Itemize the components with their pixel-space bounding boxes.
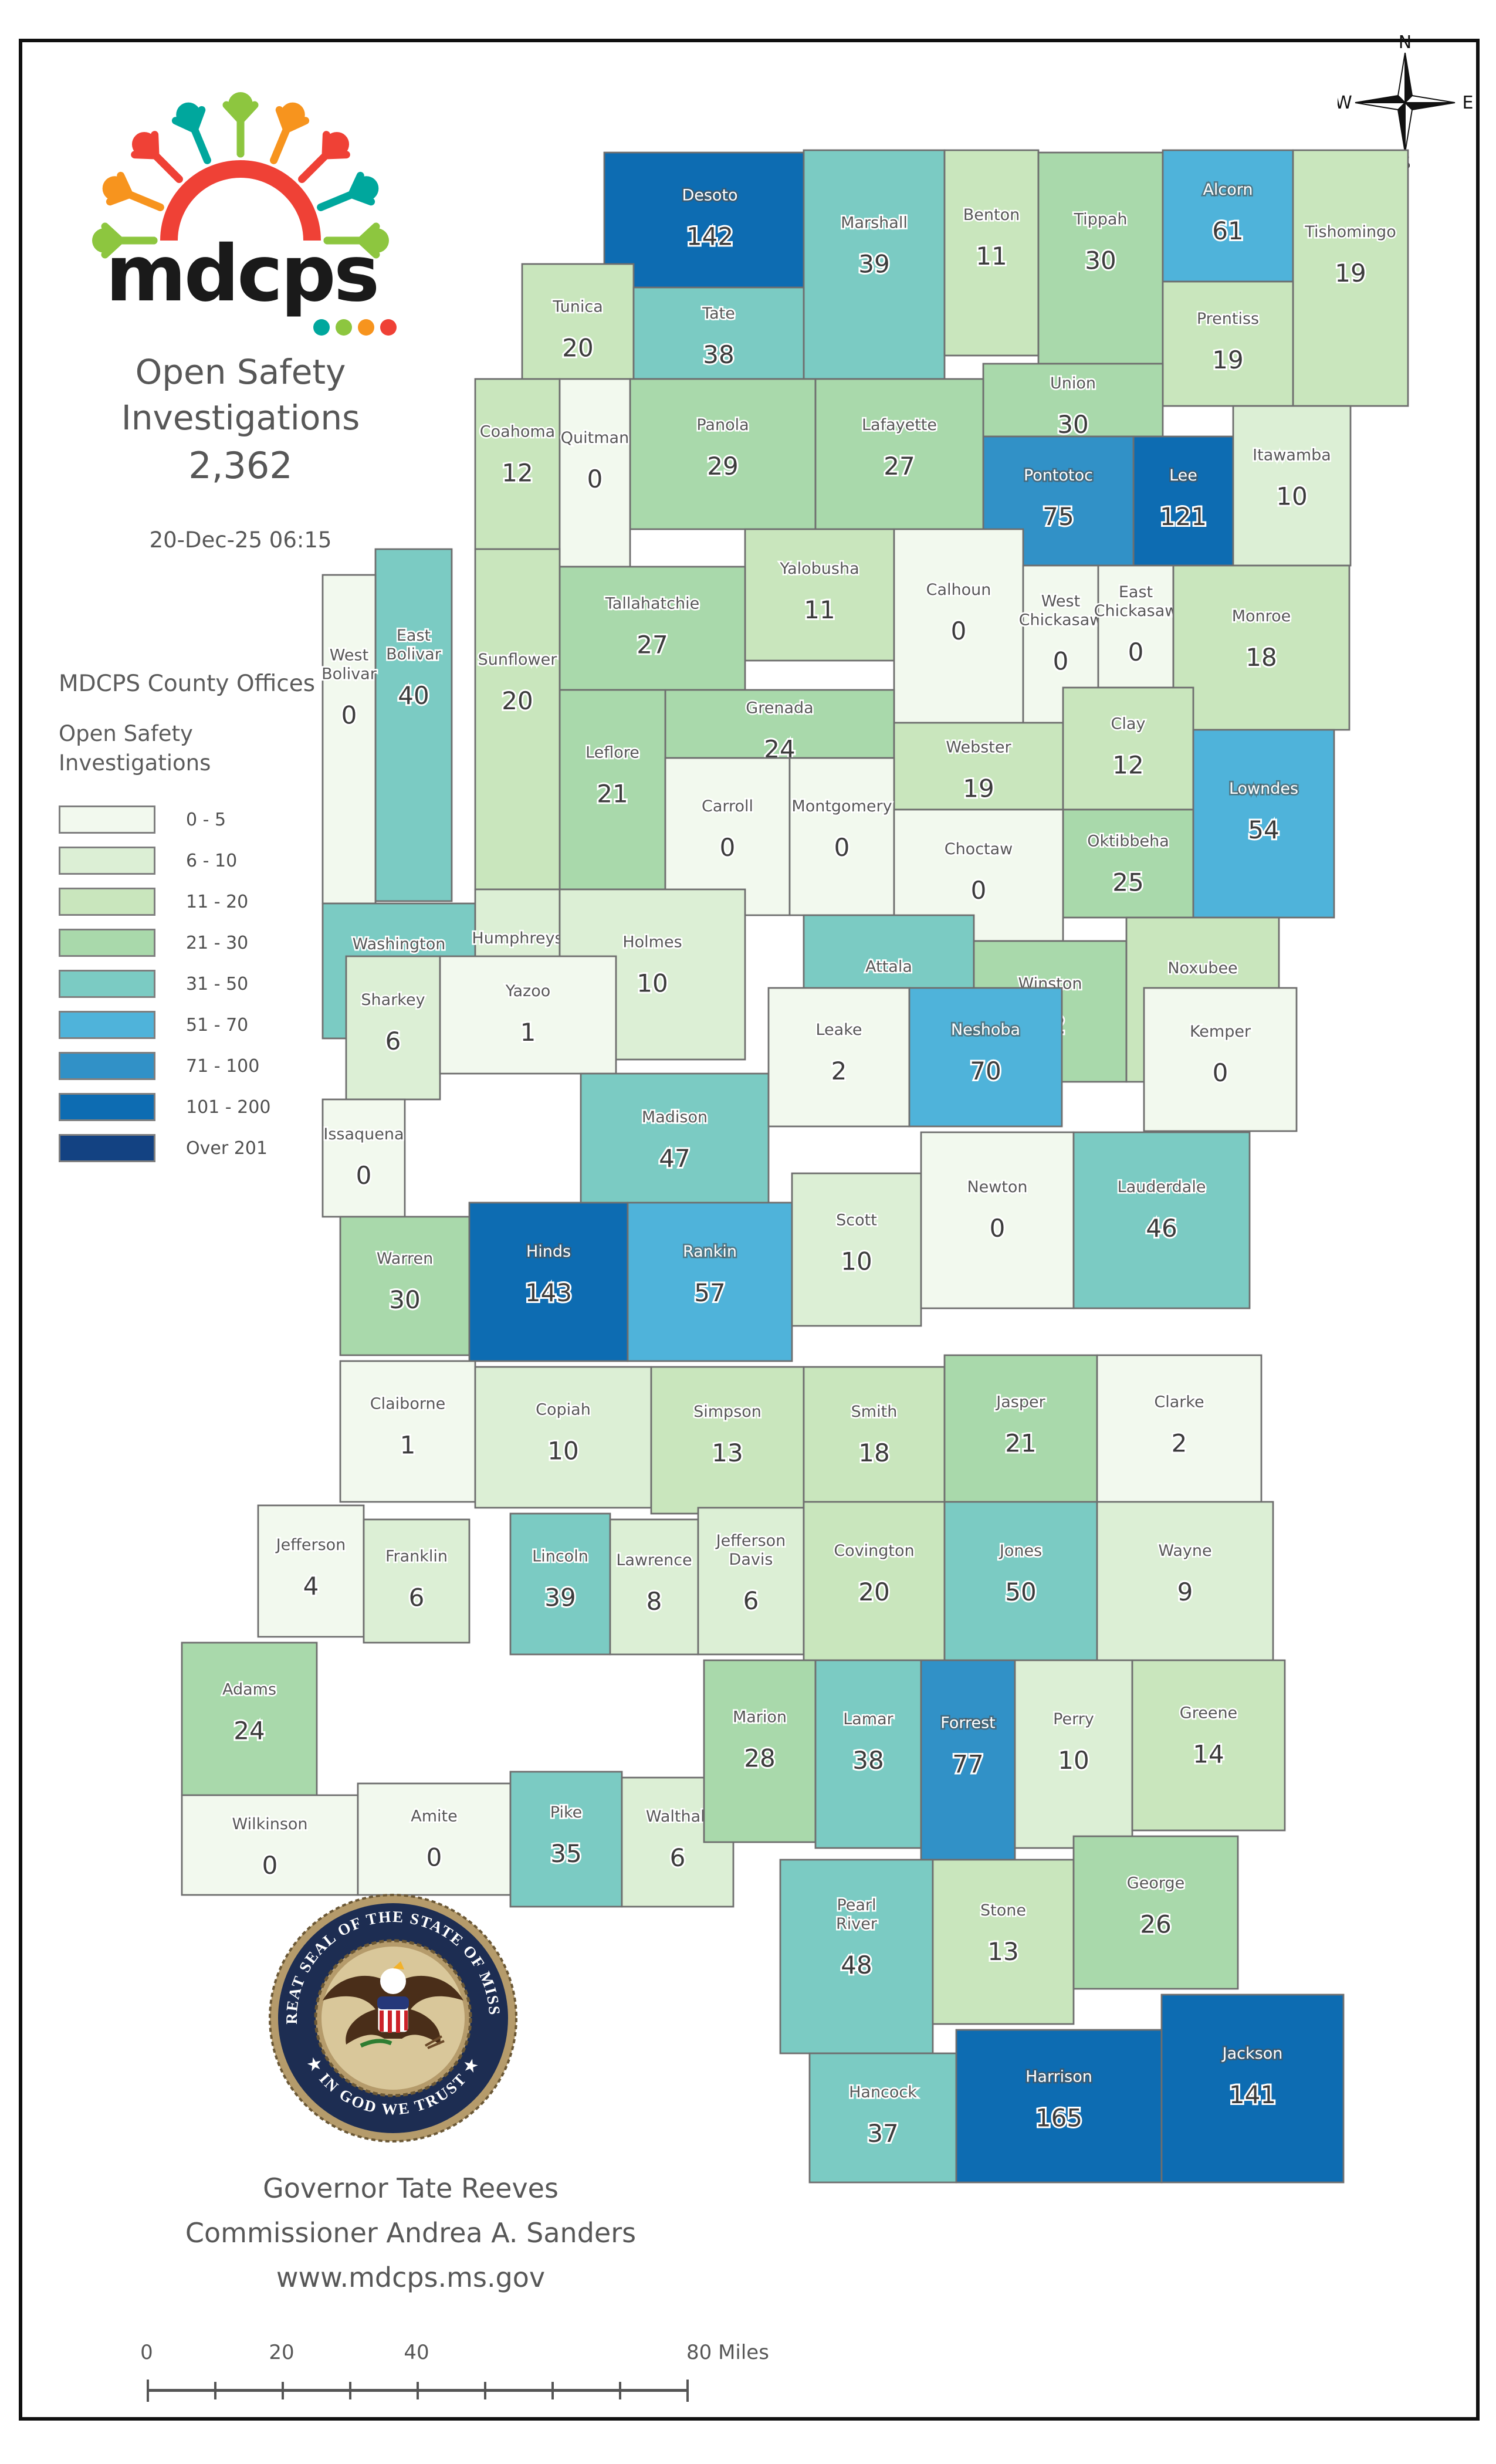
county-value: 143 xyxy=(525,1278,572,1307)
county-name-label: Marion xyxy=(733,1708,787,1726)
county-value: 27 xyxy=(884,452,915,480)
county-lamar: Lamar38 xyxy=(815,1660,921,1848)
county-value: 28 xyxy=(744,1744,775,1772)
county-name-label: Stone xyxy=(980,1901,1026,1920)
county-name-label: Lauderdale xyxy=(1118,1178,1206,1196)
county-clarke: Clarke2 xyxy=(1097,1355,1261,1508)
county-name-label: Forrest xyxy=(940,1714,996,1732)
county-value: 61 xyxy=(1212,216,1243,245)
county-name-label: East xyxy=(397,627,431,645)
county-value: 165 xyxy=(1035,2103,1082,2132)
county-sunflower: Sunflower20 xyxy=(475,549,560,889)
county-shape xyxy=(810,2053,956,2182)
county-value: 9 xyxy=(1177,1578,1193,1606)
county-name-label: Hancock xyxy=(849,2083,917,2101)
county-shape xyxy=(1163,150,1293,282)
county-shape xyxy=(698,1508,804,1654)
county-name-label: Chickasaw xyxy=(1019,611,1103,629)
county-value: 19 xyxy=(963,774,994,803)
county-value: 39 xyxy=(544,1583,576,1612)
county-value: 35 xyxy=(550,1839,581,1868)
county-value: 54 xyxy=(1248,815,1279,844)
county-name-label: Quitman xyxy=(561,429,629,447)
county-name-label: Warren xyxy=(377,1250,433,1268)
county-value: 0 xyxy=(720,833,736,862)
county-value: 0 xyxy=(341,701,357,730)
county-shape xyxy=(1063,688,1193,810)
county-value: 0 xyxy=(971,876,987,905)
county-smith: Smith18 xyxy=(804,1367,945,1514)
county-covington: Covington20 xyxy=(804,1502,945,1660)
county-leflore: Leflore21 xyxy=(560,690,665,889)
county-name-label: Yazoo xyxy=(505,982,551,1000)
scale-tick xyxy=(619,2382,621,2399)
county-shape xyxy=(745,529,894,661)
county-value: 10 xyxy=(637,969,668,998)
scale-mile-label: 0 xyxy=(140,2341,153,2364)
county-value: 6 xyxy=(385,1027,401,1055)
county-webster: Webster19 xyxy=(894,723,1063,810)
county-name-label: Jackson xyxy=(1221,2045,1283,2063)
county-value: 0 xyxy=(356,1161,372,1190)
county-value: 20 xyxy=(562,334,593,363)
scale-tick xyxy=(349,2382,351,2399)
county-choropleth: Desoto142Marshall39Benton11Tippah30Alcor… xyxy=(147,141,1426,2194)
county-chickasaw-east: EastChickasaw0 xyxy=(1094,566,1178,688)
county-value: 10 xyxy=(1058,1746,1089,1775)
county-alcorn: Alcorn61 xyxy=(1163,150,1293,282)
county-name-label: Wilkinson xyxy=(232,1815,307,1833)
county-name-label: West xyxy=(1041,593,1080,611)
county-desoto: Desoto142 xyxy=(604,153,815,293)
county-value: 0 xyxy=(262,1851,278,1880)
county-name-label: Benton xyxy=(963,206,1020,224)
county-name-label: Perry xyxy=(1053,1710,1094,1728)
county-value: 0 xyxy=(1053,647,1069,676)
county-value: 27 xyxy=(637,630,668,659)
county-value: 30 xyxy=(1085,246,1116,275)
county-tate: Tate38 xyxy=(634,287,804,379)
county-sharkey: Sharkey6 xyxy=(346,956,440,1099)
county-leake: Leake2 xyxy=(769,988,909,1126)
scale-tick xyxy=(686,2380,689,2402)
county-marion: Marion28 xyxy=(704,1660,815,1842)
county-name-label: Clarke xyxy=(1154,1393,1204,1411)
county-value: 10 xyxy=(841,1247,872,1275)
county-name-label: Covington xyxy=(834,1542,914,1560)
county-itawamba: Itawamba10 xyxy=(1233,406,1351,566)
compass-n-label: N xyxy=(1399,35,1412,53)
county-value: 6 xyxy=(743,1586,759,1615)
county-rankin: Rankin57 xyxy=(628,1203,792,1361)
legend-swatch xyxy=(59,970,155,998)
county-value: 50 xyxy=(1005,1578,1036,1606)
county-george: George26 xyxy=(1074,1836,1238,1989)
scale-mile-label: 80 Miles xyxy=(686,2341,769,2364)
county-claiborne: Claiborne1 xyxy=(340,1361,475,1502)
county-name-label: Issaquena xyxy=(323,1125,404,1143)
county-newton: Newton0 xyxy=(921,1132,1074,1308)
county-value: 0 xyxy=(990,1214,1006,1243)
county-lawrence: Lawrence8 xyxy=(610,1519,698,1654)
county-pike: Pike35 xyxy=(510,1772,622,1907)
county-shape xyxy=(440,956,616,1074)
county-copiah: Copiah10 xyxy=(475,1367,651,1508)
county-value: 121 xyxy=(1160,502,1207,531)
county-warren: Warren30 xyxy=(340,1217,469,1355)
county-name-label: Amite xyxy=(411,1808,457,1826)
legend-swatch xyxy=(59,847,155,875)
county-value: 18 xyxy=(1245,643,1277,672)
county-value: 46 xyxy=(1146,1214,1177,1243)
county-name-label: Carroll xyxy=(702,797,753,815)
scale-tick xyxy=(147,2380,149,2402)
legend-swatch xyxy=(59,1011,155,1039)
county-value: 0 xyxy=(1128,638,1144,666)
county-union: Union30 xyxy=(983,364,1163,439)
county-tallahatchie: Tallahatchie27 xyxy=(560,567,745,690)
county-harrison: Harrison165 xyxy=(956,2030,1162,2182)
county-quitman: Quitman0 xyxy=(560,379,630,567)
county-hinds: Hinds143 xyxy=(469,1203,628,1361)
county-jefferson: Jefferson4 xyxy=(258,1505,364,1637)
county-name-label: Tunica xyxy=(552,298,603,316)
county-value: 1 xyxy=(400,1431,416,1460)
county-name-label: West xyxy=(330,647,368,665)
compass-w-label: W xyxy=(1338,93,1352,113)
commissioner-credit: Commissioner Andrea A. Sanders xyxy=(100,2211,722,2255)
legend-swatch xyxy=(59,805,155,834)
county-name-label: Bolivar xyxy=(386,645,442,664)
county-name-label: Desoto xyxy=(682,187,737,205)
county-amite: Amite0 xyxy=(358,1783,510,1895)
county-value: 29 xyxy=(707,452,738,480)
county-name-label: Rankin xyxy=(683,1243,737,1261)
county-value: 10 xyxy=(1276,482,1307,510)
county-name-label: Lee xyxy=(1169,466,1197,485)
footer-credits: Governor Tate Reeves Commissioner Andrea… xyxy=(100,2166,722,2300)
county-madison: Madison47 xyxy=(581,1074,769,1217)
county-jones: Jones50 xyxy=(945,1502,1097,1660)
county-name-label: Kemper xyxy=(1190,1023,1251,1041)
county-value: 37 xyxy=(867,2119,898,2148)
county-value: 20 xyxy=(858,1578,889,1606)
county-name-label: Leflore xyxy=(585,744,639,762)
county-value: 1 xyxy=(520,1018,536,1047)
county-name-label: Panola xyxy=(696,416,749,434)
county-oktibbeha: Oktibbeha25 xyxy=(1063,810,1193,918)
county-shape xyxy=(560,567,745,690)
county-name-label: George xyxy=(1127,1874,1184,1892)
scale-mile-label: 40 xyxy=(404,2341,429,2364)
county-name-label: Wayne xyxy=(1158,1542,1211,1560)
county-name-label: Monroe xyxy=(1232,607,1291,625)
county-value: 2 xyxy=(831,1057,847,1085)
county-name-label: Jasper xyxy=(995,1393,1045,1411)
county-name-label: Lafayette xyxy=(862,416,937,434)
county-shape xyxy=(182,1795,358,1895)
county-coahoma: Coahoma12 xyxy=(475,379,560,549)
website-link: www.mdcps.ms.gov xyxy=(100,2255,722,2300)
county-value: 0 xyxy=(1213,1058,1228,1087)
county-name-label: Scott xyxy=(836,1211,877,1229)
county-value: 21 xyxy=(597,780,628,808)
legend-swatch xyxy=(59,1052,155,1080)
mississippi-county-map: Desoto142Marshall39Benton11Tippah30Alcor… xyxy=(147,141,1426,2194)
county-value: 47 xyxy=(659,1144,690,1173)
county-value: 70 xyxy=(970,1057,1001,1085)
county-name-label: Tishomingo xyxy=(1304,223,1396,241)
county-prentiss: Prentiss19 xyxy=(1163,282,1293,406)
county-value: 6 xyxy=(409,1583,425,1612)
county-shape xyxy=(358,1783,510,1895)
county-name-label: Humphreys xyxy=(472,929,563,947)
county-clay: Clay12 xyxy=(1063,688,1193,810)
county-name-label: Alcorn xyxy=(1203,181,1253,199)
county-adams: Adams24 xyxy=(182,1643,317,1795)
county-name-label: Davis xyxy=(729,1551,773,1569)
county-name-label: Claiborne xyxy=(370,1395,445,1413)
county-simpson: Simpson13 xyxy=(651,1367,804,1514)
county-yazoo: Yazoo1 xyxy=(440,956,616,1074)
county-lauderdale: Lauderdale46 xyxy=(1074,1132,1250,1308)
county-name-label: Clay xyxy=(1111,715,1146,733)
county-monroe: Monroe18 xyxy=(1173,566,1349,730)
county-shape xyxy=(375,549,452,901)
county-name-label: Marshall xyxy=(841,214,908,232)
county-bolivar-east: EastBolivar40 xyxy=(375,549,452,901)
county-name-label: Choctaw xyxy=(945,840,1013,858)
county-value: 38 xyxy=(703,340,734,369)
county-value: 14 xyxy=(1193,1740,1224,1769)
county-yalobusha: Yalobusha11 xyxy=(745,529,894,661)
county-value: 21 xyxy=(1005,1429,1036,1457)
county-value: 26 xyxy=(1140,1910,1171,1938)
county-tippah: Tippah30 xyxy=(1038,153,1163,364)
county-name-label: Pike xyxy=(550,1803,582,1822)
county-marshall: Marshall39 xyxy=(804,150,945,379)
county-name-label: Sharkey xyxy=(361,991,425,1009)
county-value: 77 xyxy=(952,1750,983,1779)
county-shape xyxy=(475,549,560,889)
county-jackson: Jackson141 xyxy=(1162,1995,1343,2182)
county-value: 75 xyxy=(1043,502,1074,531)
county-name-label: Bolivar xyxy=(321,665,377,683)
county-name-label: Union xyxy=(1050,374,1096,392)
county-name-label: Tate xyxy=(702,304,735,323)
county-name-label: Grenada xyxy=(746,699,813,717)
scale-tick xyxy=(484,2382,486,2399)
county-value: 6 xyxy=(670,1843,686,1872)
county-name-label: Oktibbeha xyxy=(1087,832,1169,851)
county-wilkinson: Wilkinson0 xyxy=(182,1795,358,1895)
county-name-label: Noxubee xyxy=(1167,959,1237,977)
county-lowndes: Lowndes54 xyxy=(1193,730,1334,918)
county-name-label: Attala xyxy=(865,958,912,976)
county-value: 12 xyxy=(502,459,533,488)
county-name-label: Newton xyxy=(967,1178,1027,1196)
county-value: 30 xyxy=(389,1285,420,1314)
county-value: 11 xyxy=(804,595,835,624)
county-pearl-river: PearlRiver48 xyxy=(780,1860,933,2053)
county-shape xyxy=(1163,282,1293,406)
county-name-label: Walthall xyxy=(646,1808,709,1826)
county-value: 40 xyxy=(398,681,429,710)
county-name-label: Lincoln xyxy=(532,1548,588,1566)
county-name-label: Jefferson xyxy=(715,1532,786,1550)
county-name-label: Lamar xyxy=(843,1710,893,1728)
county-neshoba: Neshoba70 xyxy=(909,988,1062,1126)
scale-mile-label: 20 xyxy=(269,2341,294,2364)
mississippi-state-seal: THE GREAT SEAL OF THE STATE OF MISSISSIP… xyxy=(267,1892,519,2144)
scale-tick xyxy=(417,2382,419,2399)
county-name-label: River xyxy=(836,1915,878,1933)
county-value: 24 xyxy=(233,1716,265,1745)
map-scale-bar: 0204080 Miles xyxy=(147,2341,792,2403)
county-value: 10 xyxy=(547,1437,578,1465)
county-name-label: Madison xyxy=(642,1108,708,1126)
county-jasper: Jasper21 xyxy=(945,1355,1097,1508)
county-name-label: Jones xyxy=(999,1542,1042,1560)
county-value: 8 xyxy=(647,1587,662,1616)
county-name-label: Simpson xyxy=(693,1403,761,1421)
county-stone: Stone13 xyxy=(933,1860,1074,2024)
county-name-label: Webster xyxy=(946,738,1011,756)
county-grenada: Grenada24 xyxy=(665,690,894,763)
county-forrest: Forrest77 xyxy=(921,1660,1015,1860)
county-value: 12 xyxy=(1112,751,1143,780)
county-name-label: Sunflower xyxy=(478,651,558,669)
county-franklin: Franklin6 xyxy=(364,1519,469,1643)
county-name-label: Lowndes xyxy=(1229,780,1298,798)
county-value: 48 xyxy=(841,1951,872,1979)
legend-swatch xyxy=(59,888,155,916)
county-name-label: Coahoma xyxy=(480,423,555,441)
county-value: 38 xyxy=(852,1746,884,1775)
county-jefferson-davis: JeffersonDavis6 xyxy=(698,1508,804,1654)
county-name-label: Prentiss xyxy=(1197,310,1259,328)
county-name-label: Montgomery xyxy=(791,797,892,815)
scale-tick xyxy=(282,2382,284,2399)
county-shape xyxy=(1133,436,1233,566)
county-shape xyxy=(323,575,375,903)
governor-credit: Governor Tate Reeves xyxy=(100,2166,722,2211)
county-name-label: Copiah xyxy=(536,1401,591,1419)
county-name-label: Pontotoc xyxy=(1024,466,1093,485)
county-name-label: Hinds xyxy=(526,1243,571,1261)
county-lincoln: Lincoln39 xyxy=(510,1514,610,1654)
county-tishomingo: Tishomingo19 xyxy=(1293,150,1408,406)
county-name-label: Smith xyxy=(851,1403,898,1421)
county-name-label: Tallahatchie xyxy=(605,594,699,612)
county-name-label: Lawrence xyxy=(616,1551,692,1569)
scale-line xyxy=(147,2377,792,2403)
county-shape xyxy=(258,1505,364,1637)
scale-tick xyxy=(214,2382,216,2399)
county-shape xyxy=(1063,810,1193,918)
county-value: 20 xyxy=(502,686,533,715)
county-value: 25 xyxy=(1112,868,1143,897)
page: { "header": { "logo_acronym": "mdcps", "… xyxy=(0,0,1496,2464)
county-value: 11 xyxy=(976,242,1007,270)
county-montgomery: Montgomery0 xyxy=(790,758,894,915)
county-lee: Lee121 xyxy=(1133,436,1233,566)
county-name-label: Yalobusha xyxy=(779,560,859,578)
county-bolivar-west: WestBolivar0 xyxy=(321,575,377,903)
county-kemper: Kemper0 xyxy=(1144,988,1297,1131)
county-name-label: Jefferson xyxy=(275,1536,346,1554)
county-panola: Panola29 xyxy=(630,379,815,529)
county-scott: Scott10 xyxy=(792,1173,921,1326)
legend-swatch xyxy=(59,1134,155,1162)
county-name-label: Pearl xyxy=(837,1896,876,1914)
county-value: 19 xyxy=(1212,346,1243,374)
scale-labels: 0204080 Miles xyxy=(147,2341,792,2367)
county-benton: Benton11 xyxy=(945,150,1038,356)
county-value: 2 xyxy=(1172,1429,1187,1457)
county-value: 13 xyxy=(987,1937,1018,1966)
county-value: 30 xyxy=(1057,410,1088,439)
county-value: 142 xyxy=(686,222,733,251)
legend-swatch xyxy=(59,929,155,957)
county-name-label: Neshoba xyxy=(951,1021,1020,1039)
county-name-label: Itawamba xyxy=(1253,446,1331,464)
county-wayne: Wayne9 xyxy=(1097,1502,1273,1660)
county-value: 0 xyxy=(427,1843,442,1872)
county-shape xyxy=(323,1099,405,1217)
compass-e-label: E xyxy=(1463,93,1473,113)
county-value: 0 xyxy=(587,465,603,493)
county-value: 57 xyxy=(694,1278,725,1307)
county-value: 18 xyxy=(858,1439,889,1467)
county-greene: Greene14 xyxy=(1132,1660,1285,1830)
county-name-label: Adams xyxy=(222,1680,276,1698)
county-perry: Perry10 xyxy=(1015,1660,1132,1848)
scale-tick xyxy=(551,2382,554,2399)
county-name-label: Holmes xyxy=(622,933,682,952)
county-value: 19 xyxy=(1335,259,1366,287)
county-value: 39 xyxy=(858,250,889,279)
county-name-label: Washington xyxy=(353,935,446,953)
county-value: 0 xyxy=(951,617,967,645)
county-name-label: Franklin xyxy=(385,1547,448,1565)
county-issaquena: Issaquena0 xyxy=(323,1099,405,1217)
county-lafayette: Lafayette27 xyxy=(815,379,983,529)
legend-swatch xyxy=(59,1093,155,1121)
county-value: 0 xyxy=(834,833,850,862)
county-name-label: Leake xyxy=(815,1021,862,1039)
county-value: 13 xyxy=(712,1439,743,1467)
county-calhoun: Calhoun0 xyxy=(894,529,1023,723)
county-name-label: Harrison xyxy=(1025,2067,1092,2086)
county-shape xyxy=(364,1519,469,1643)
county-name-label: Greene xyxy=(1180,1704,1237,1722)
county-value: 141 xyxy=(1229,2080,1276,2109)
county-hancock: Hancock37 xyxy=(810,2053,956,2182)
county-name-label: Calhoun xyxy=(926,581,991,599)
county-name-label: East xyxy=(1119,583,1153,601)
county-name-label: Chickasaw xyxy=(1094,602,1178,620)
county-value: 4 xyxy=(303,1572,319,1600)
county-name-label: Tippah xyxy=(1073,210,1127,228)
